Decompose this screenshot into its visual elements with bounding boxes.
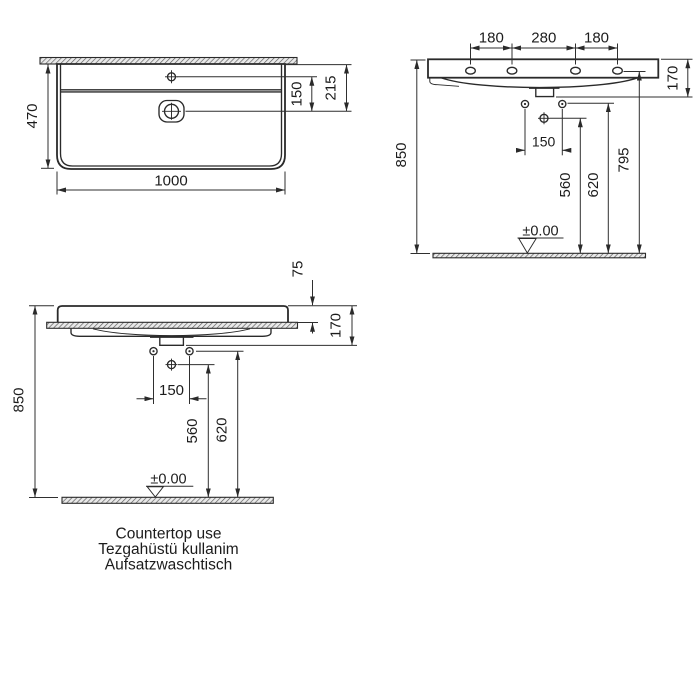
basin-outer-outline: [57, 64, 285, 169]
dim-drain-height: 560: [557, 172, 574, 197]
dim-drain-height: 560: [184, 418, 201, 443]
dim-tap-spacing-center: 280: [531, 30, 556, 47]
fixing-hole-center: [152, 350, 154, 352]
dim-tap-height: 795: [616, 147, 633, 172]
fixing-hole-center: [524, 103, 526, 105]
floor-bar: [433, 253, 646, 257]
plan-view: 470 1000 150 215: [24, 58, 352, 195]
drain-outlet: [536, 88, 554, 96]
basin-rim-profile: [58, 306, 288, 322]
countertop-bar: [47, 322, 298, 328]
caption-en: Countertop use: [116, 526, 222, 543]
washbasin-technical-drawing: 470 1000 150 215 180 280: [0, 0, 700, 700]
dim-basin-height: 170: [328, 313, 345, 338]
caption-de: Aufsatzwaschtisch: [105, 557, 233, 574]
caption-tr: Tezgahüstü kullanim: [98, 541, 238, 558]
floor-datum-label: ±0.00: [150, 472, 186, 488]
dim-fixing-height: 620: [585, 172, 602, 197]
drain-outlet: [160, 337, 184, 345]
dim-tap-to-drain: 150: [289, 81, 306, 106]
dim-back-to-drain: 215: [323, 75, 340, 100]
floor-bar: [62, 497, 273, 503]
dim-tap-spacing-right: 180: [584, 30, 609, 47]
dim-depth: 470: [24, 103, 41, 128]
bowl-underside-curve: [93, 329, 250, 336]
fixing-hole-center: [188, 350, 190, 352]
bowl-underside-curve: [441, 78, 638, 88]
basin-rim-profile: [428, 59, 658, 77]
dim-basin-height: 170: [665, 66, 682, 91]
wall-elevation-view: 180 280 180 170 150 850 560 620: [393, 30, 693, 258]
dim-rim-above-counter: 75: [290, 261, 307, 278]
datum-triangle-icon: [519, 239, 536, 254]
dim-fixing-spacing: 150: [159, 382, 184, 399]
floor-datum-label: ±0.00: [522, 224, 558, 240]
dim-rim-height: 850: [11, 387, 28, 412]
dim-rim-height: 850: [393, 142, 410, 167]
dim-fixing-spacing: 150: [532, 134, 556, 150]
dim-width: 1000: [154, 173, 187, 190]
caption: Countertop use Tezgahüstü kullanim Aufsa…: [98, 526, 238, 574]
countertop-elevation-view: 75 170 850 150 560 620 ±0.00: [11, 261, 358, 504]
datum-triangle-icon: [147, 487, 163, 497]
dim-tap-spacing-left: 180: [479, 30, 504, 47]
fixing-hole-center: [561, 103, 563, 105]
dim-fixing-height: 620: [214, 417, 231, 442]
wall-section-bar: [40, 58, 297, 65]
drawing-sheet: 470 1000 150 215 180 280: [0, 0, 700, 700]
